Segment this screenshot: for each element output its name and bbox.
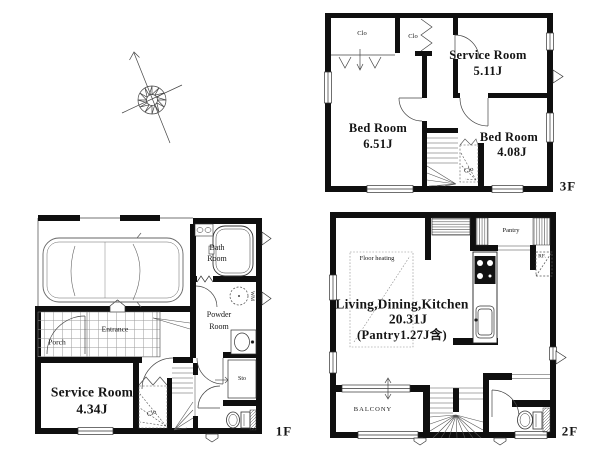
site-fence (38, 215, 193, 306)
room-area-service-3f: 5.11J (474, 65, 503, 78)
room-note-ldk: (Pantry1.27J含) (357, 329, 447, 342)
powder-room-label-2: Room (209, 323, 229, 331)
porch-label: Porch (48, 338, 66, 346)
stairs-1f (172, 368, 193, 430)
floor-plan-3f-drawing (325, 13, 575, 198)
vent-triangle-icon (556, 351, 566, 364)
kitchen-counter (473, 252, 497, 343)
closet-label: Clo (408, 34, 417, 41)
closet-1f (139, 377, 167, 428)
floor-plan-page: Clo Clo Service Room 5.11J Bed Room 6.51… (0, 0, 600, 458)
hanger-icon (369, 57, 381, 68)
hall-doors-1f (142, 358, 223, 416)
stairs-3f (427, 138, 458, 186)
vent-triangle-icon (553, 70, 563, 83)
interior-walls-3f (395, 18, 547, 186)
folding-door-icon (197, 276, 213, 282)
floor-plan-1f-drawing (35, 212, 293, 452)
room-name-service-1f: Service Room (51, 385, 133, 399)
balcony-label: BALCONY (354, 407, 392, 414)
car-icon (43, 233, 183, 307)
north-arrow-compass-icon (112, 40, 202, 150)
outer-walls-3f (325, 13, 553, 192)
vent-icon (414, 438, 426, 445)
powder-room-fixtures (196, 286, 256, 354)
floor-heating-label: Floor heating (360, 256, 395, 263)
bath-counter-icon (195, 224, 213, 236)
vent-triangle-icon (262, 232, 271, 245)
floor-plan-3f: Clo Clo Service Room 5.11J Bed Room 6.51… (325, 13, 575, 198)
stove-icon (475, 256, 496, 284)
floor-plan-2f: Pantry RF. Floor heating Living,Dining,K… (330, 210, 585, 450)
floor-plan-1f: Bath Room WM Powder Room Porch Entrance … (35, 212, 293, 452)
door-arc (196, 286, 217, 307)
cased-opening (512, 375, 550, 379)
under-stair-closet-3f (460, 139, 478, 182)
washing-machine-label: WM (248, 291, 254, 301)
room-area-bedroom-right: 4.08J (497, 146, 527, 159)
storage-label: Sto (238, 376, 246, 382)
stairwell-hatch (432, 218, 470, 235)
room-name-bedroom-right: Bed Room (480, 131, 538, 144)
sink-icon (475, 306, 494, 338)
bifold-door-icon (421, 19, 432, 51)
room-area-ldk: 20.31J (389, 312, 427, 326)
floor-label-3f: 3F (560, 180, 576, 193)
room-name-bedroom-left: Bed Room (349, 122, 407, 135)
pantry-label: Pantry (503, 228, 520, 235)
floor-label-1f: 1F (276, 425, 292, 438)
closet-label: Clo (357, 31, 366, 38)
floor-label-2f: 2F (562, 425, 578, 438)
refrigerator-label: RF. (538, 254, 546, 260)
room-area-bedroom-left: 6.51J (363, 138, 393, 151)
room-name-ldk: Living,Dining,Kitchen (335, 297, 468, 311)
entrance-label: Entrance (102, 325, 129, 333)
vent-triangle-icon (262, 292, 271, 305)
powder-room-label-1: Powder (207, 311, 231, 319)
washbasin-icon (231, 330, 256, 354)
room-area-service-1f: 4.34J (76, 402, 107, 416)
vent-icon (206, 434, 218, 442)
toilet-icon (518, 408, 551, 432)
bath-room-label-2: Room (207, 255, 227, 263)
vent-icon (494, 438, 506, 445)
bath-room-fixtures (195, 224, 253, 282)
porch-tiles (38, 312, 160, 357)
storage-1f (215, 360, 256, 398)
room-name-service-3f: Service Room (449, 49, 527, 62)
balcony-opening (342, 378, 410, 399)
hanger-icon (339, 57, 351, 68)
entrance-tiles (87, 312, 160, 357)
compass (112, 40, 202, 150)
toilet-icon (227, 410, 257, 430)
bath-room-label-1: Bath (209, 244, 224, 252)
closet-fittings-3f (331, 19, 432, 70)
